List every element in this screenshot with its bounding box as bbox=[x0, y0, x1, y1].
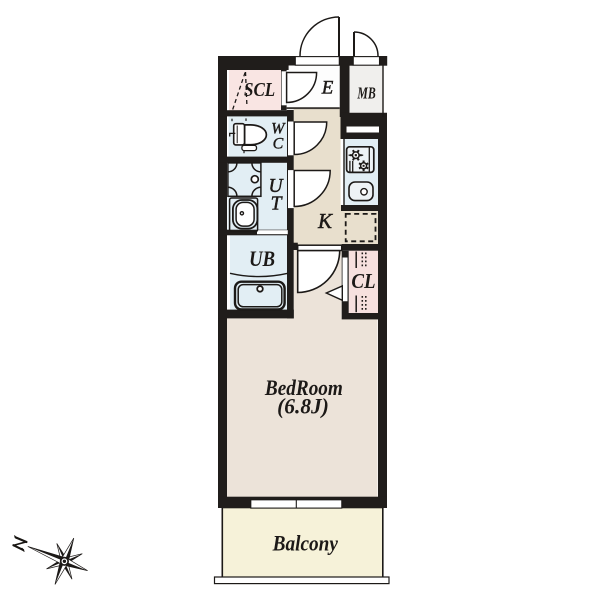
svg-text:E: E bbox=[321, 78, 334, 99]
svg-text:T: T bbox=[271, 194, 283, 215]
svg-text:C: C bbox=[273, 136, 284, 153]
svg-text:UB: UB bbox=[249, 246, 275, 271]
svg-text:Balcony: Balcony bbox=[272, 531, 338, 556]
svg-text:MB: MB bbox=[357, 84, 376, 103]
svg-text:(6.8J): (6.8J) bbox=[277, 394, 329, 419]
svg-text:SCL: SCL bbox=[244, 79, 275, 101]
svg-text:K: K bbox=[317, 209, 333, 233]
svg-text:CL: CL bbox=[351, 269, 375, 293]
